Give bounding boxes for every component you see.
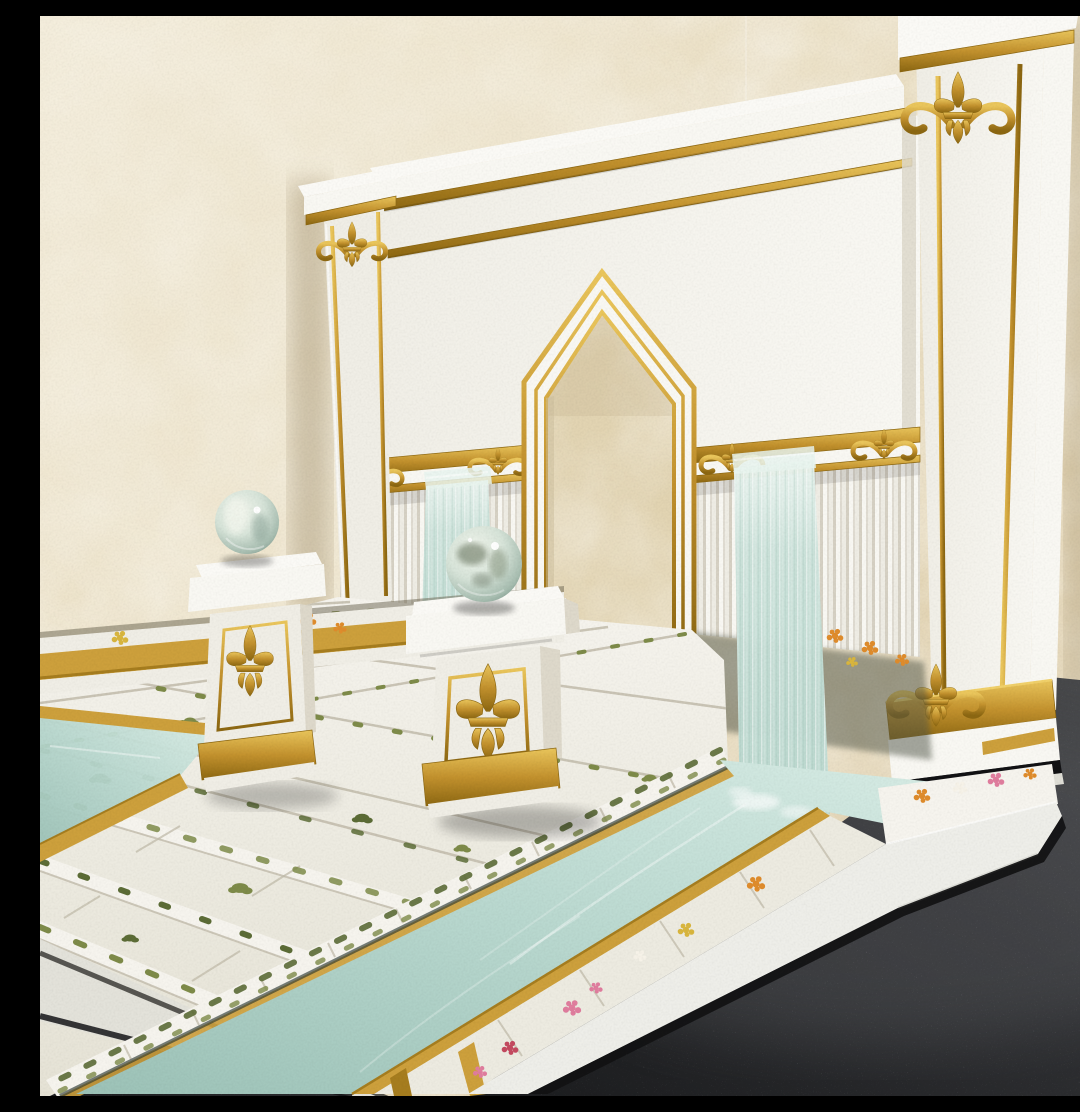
diorama-photograph: Photograph of a handmade miniature diora…	[40, 16, 1080, 1096]
photo-grain-overlay	[40, 16, 1080, 1096]
